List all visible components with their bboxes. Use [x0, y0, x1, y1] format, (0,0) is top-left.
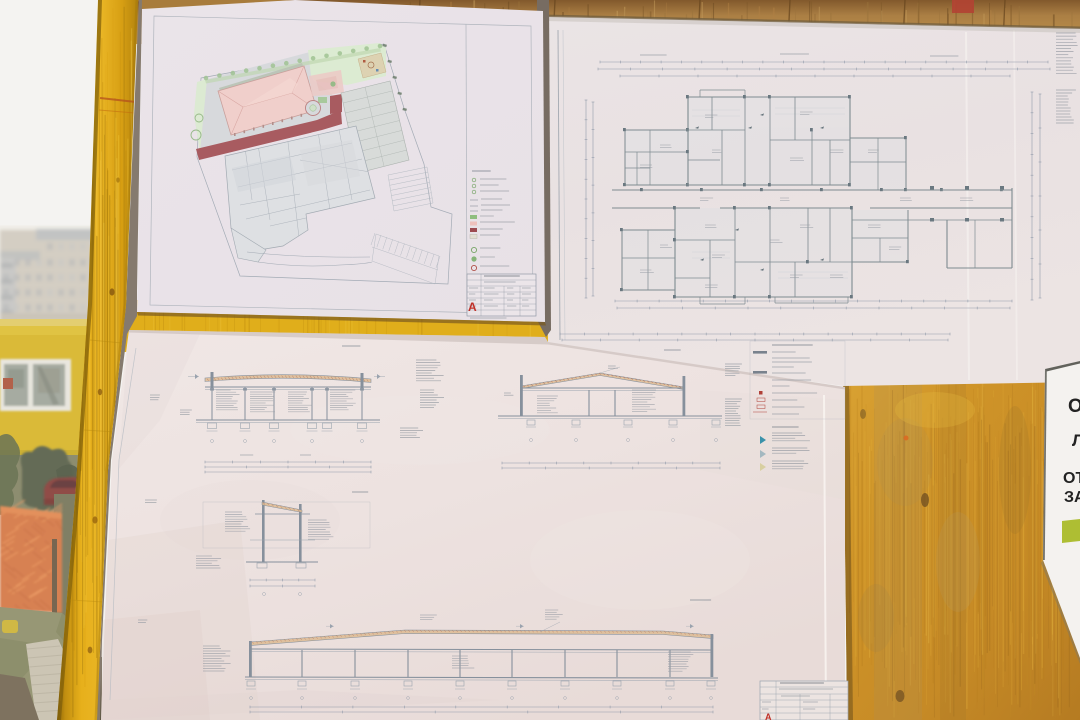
svg-text:A: A	[468, 300, 477, 314]
svg-text:ЛИ: ЛИ	[1072, 431, 1080, 450]
svg-text:A: A	[765, 712, 772, 720]
svg-text:ОТ: ОТ	[1063, 470, 1080, 487]
svg-text:ОБ: ОБ	[1068, 396, 1080, 417]
svg-text:ЗА: ЗА	[1064, 489, 1080, 506]
